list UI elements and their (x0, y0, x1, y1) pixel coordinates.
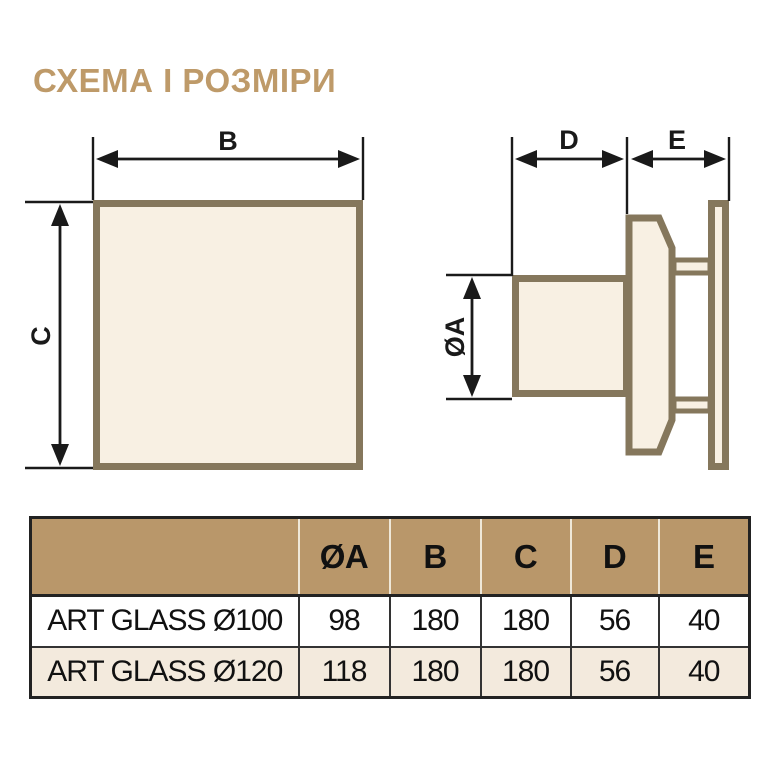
arrow-right-icon (338, 150, 360, 168)
mounting-rod-bottom (674, 399, 710, 411)
model-cell: ART GLASS Ø120 (31, 647, 299, 698)
value-cell: 98 (299, 596, 390, 647)
d-dimension: D (512, 125, 627, 276)
table-row: ART GLASS Ø120 118 180 180 56 40 (31, 647, 750, 698)
arrow-up-icon (51, 204, 69, 226)
arrow-right-icon (602, 150, 624, 168)
header-b: B (390, 518, 481, 596)
arrow-left-icon (515, 150, 537, 168)
front-panel-shape (97, 204, 360, 467)
arrow-right-icon (704, 150, 726, 168)
arrow-up-icon (463, 277, 481, 299)
e-dimension: E (631, 125, 729, 201)
value-cell: 56 (571, 596, 659, 647)
value-cell: 180 (481, 647, 571, 698)
table-row: ART GLASS Ø100 98 180 180 56 40 (31, 596, 750, 647)
value-cell: 180 (481, 596, 571, 647)
mounting-rod-top (674, 260, 710, 273)
front-view-diagram: B C (25, 126, 363, 468)
dim-label-d: D (559, 125, 579, 155)
arrow-left-icon (631, 150, 653, 168)
glass-panel-shape (712, 204, 726, 467)
side-view-diagram: D E ØA (440, 125, 729, 467)
value-cell: 180 (390, 647, 481, 698)
arrow-down-icon (51, 444, 69, 466)
value-cell: 56 (571, 647, 659, 698)
b-dimension: B (93, 126, 363, 200)
header-e: E (659, 518, 750, 596)
dim-label-b: B (218, 126, 238, 156)
header-d: D (571, 518, 659, 596)
arrow-left-icon (96, 150, 118, 168)
value-cell: 40 (659, 647, 750, 698)
dimensions-table: ØA B C D E ART GLASS Ø100 98 180 180 56 … (29, 516, 751, 699)
value-cell: 118 (299, 647, 390, 698)
c-dimension: C (25, 202, 93, 468)
arrow-down-icon (463, 375, 481, 397)
dim-label-diameter: ØA (440, 317, 470, 358)
diameter-dimension: ØA (440, 275, 512, 399)
fan-body-shape (629, 218, 672, 452)
dim-label-c: C (26, 326, 56, 346)
page-title: СХЕМА І РОЗМІРИ (33, 62, 336, 100)
dim-label-e: E (668, 125, 686, 155)
page: СХЕМА І РОЗМІРИ B C (0, 0, 776, 780)
table-header-row: ØA B C D E (31, 518, 750, 596)
dimension-diagrams: B C (0, 118, 776, 510)
value-cell: 180 (390, 596, 481, 647)
header-diameter: ØA (299, 518, 390, 596)
model-cell: ART GLASS Ø100 (31, 596, 299, 647)
duct-shape (516, 279, 627, 394)
header-model-cell (31, 518, 299, 596)
value-cell: 40 (659, 596, 750, 647)
header-c: C (481, 518, 571, 596)
